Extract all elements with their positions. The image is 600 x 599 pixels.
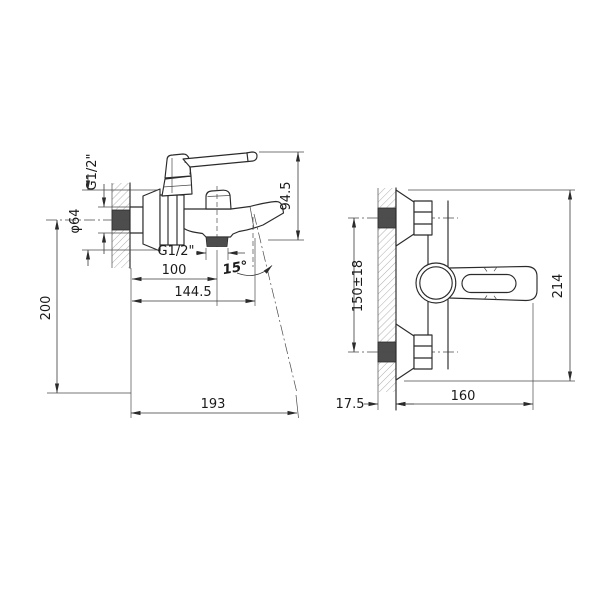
dim-193-label: 193	[201, 397, 226, 412]
faucet-side	[130, 152, 284, 251]
escutcheon	[143, 189, 160, 251]
wall-section-front	[378, 188, 396, 410]
dim-100-label: 100	[162, 263, 187, 278]
hex-nut-top	[414, 201, 432, 235]
dia64-label: φ64	[68, 208, 83, 233]
front-view: 150±18 214 17.5 160	[336, 188, 575, 412]
escutcheon-bottom	[396, 324, 414, 380]
g12-top-label: G1/2"	[85, 154, 100, 191]
dim-193: 193	[131, 395, 299, 418]
g12-bottom-label: G1/2"	[158, 244, 195, 259]
spout-angle: 15°	[221, 214, 297, 393]
dim-100: 100	[131, 250, 217, 418]
water-stream-line	[254, 214, 297, 393]
dim-17-5-label: 17.5	[336, 397, 365, 412]
faucet-technical-drawing: 15° G1/2" φ64 200 94.	[0, 0, 600, 599]
dim-160-label: 160	[451, 389, 476, 404]
dim-g12-bottom: G1/2"	[158, 244, 245, 260]
hex-nut-bottom	[414, 335, 432, 369]
handle-base	[165, 154, 191, 178]
faucet-front	[396, 190, 537, 380]
bottom-outlet-thread	[206, 237, 228, 247]
escutcheon-top	[396, 190, 414, 246]
dim-214-label: 214	[551, 274, 566, 299]
eccentric-connector	[130, 207, 143, 233]
dim-150-label: 150±18	[351, 260, 366, 312]
side-view: 15° G1/2" φ64 200 94.	[39, 152, 304, 418]
dim-17-5: 17.5	[336, 397, 414, 412]
dim-94-5: 94.5	[259, 152, 304, 240]
mixer-body	[184, 202, 284, 238]
dim-144-5-label: 144.5	[174, 285, 211, 300]
dim-94-5-label: 94.5	[279, 182, 294, 211]
drawing-svg: 15° G1/2" φ64 200 94.	[0, 0, 600, 599]
diverter-knob	[206, 190, 231, 209]
hex-nut	[160, 195, 184, 245]
wall-section-side	[112, 183, 130, 268]
dim-150: 150±18	[351, 218, 366, 352]
dim-200-label: 200	[39, 296, 54, 321]
lever-cutout	[462, 275, 516, 293]
handle-lever-side	[183, 152, 257, 167]
